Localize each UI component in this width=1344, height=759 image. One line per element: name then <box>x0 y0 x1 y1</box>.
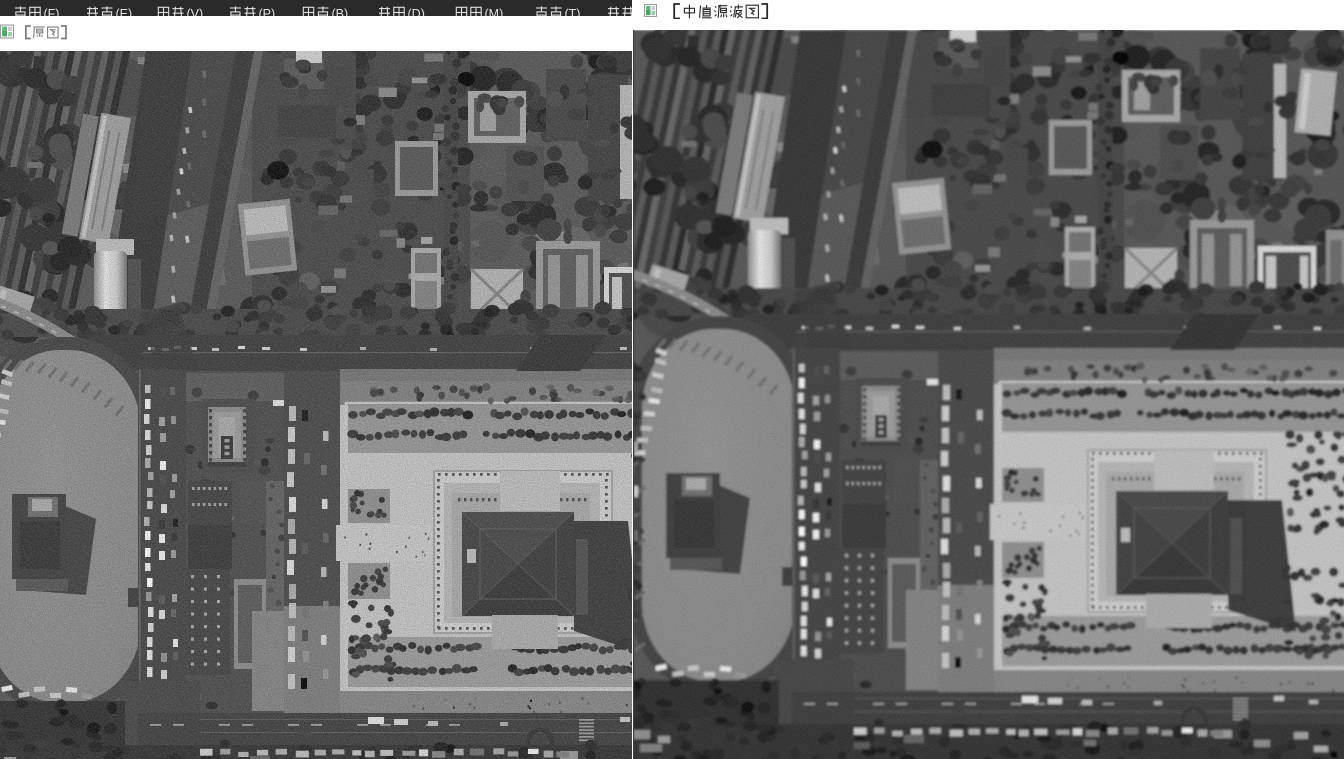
svg-text:(V): (V) <box>187 7 204 16</box>
svg-text:(T): (T) <box>565 7 581 16</box>
svg-text:(M): (M) <box>485 7 504 16</box>
svg-text:(F): (F) <box>44 7 60 16</box>
svg-text:(B): (B) <box>332 7 349 16</box>
svg-text:(P): (P) <box>259 7 276 16</box>
svg-text:(D): (D) <box>408 7 425 16</box>
svg-text:(E): (E) <box>116 7 133 16</box>
